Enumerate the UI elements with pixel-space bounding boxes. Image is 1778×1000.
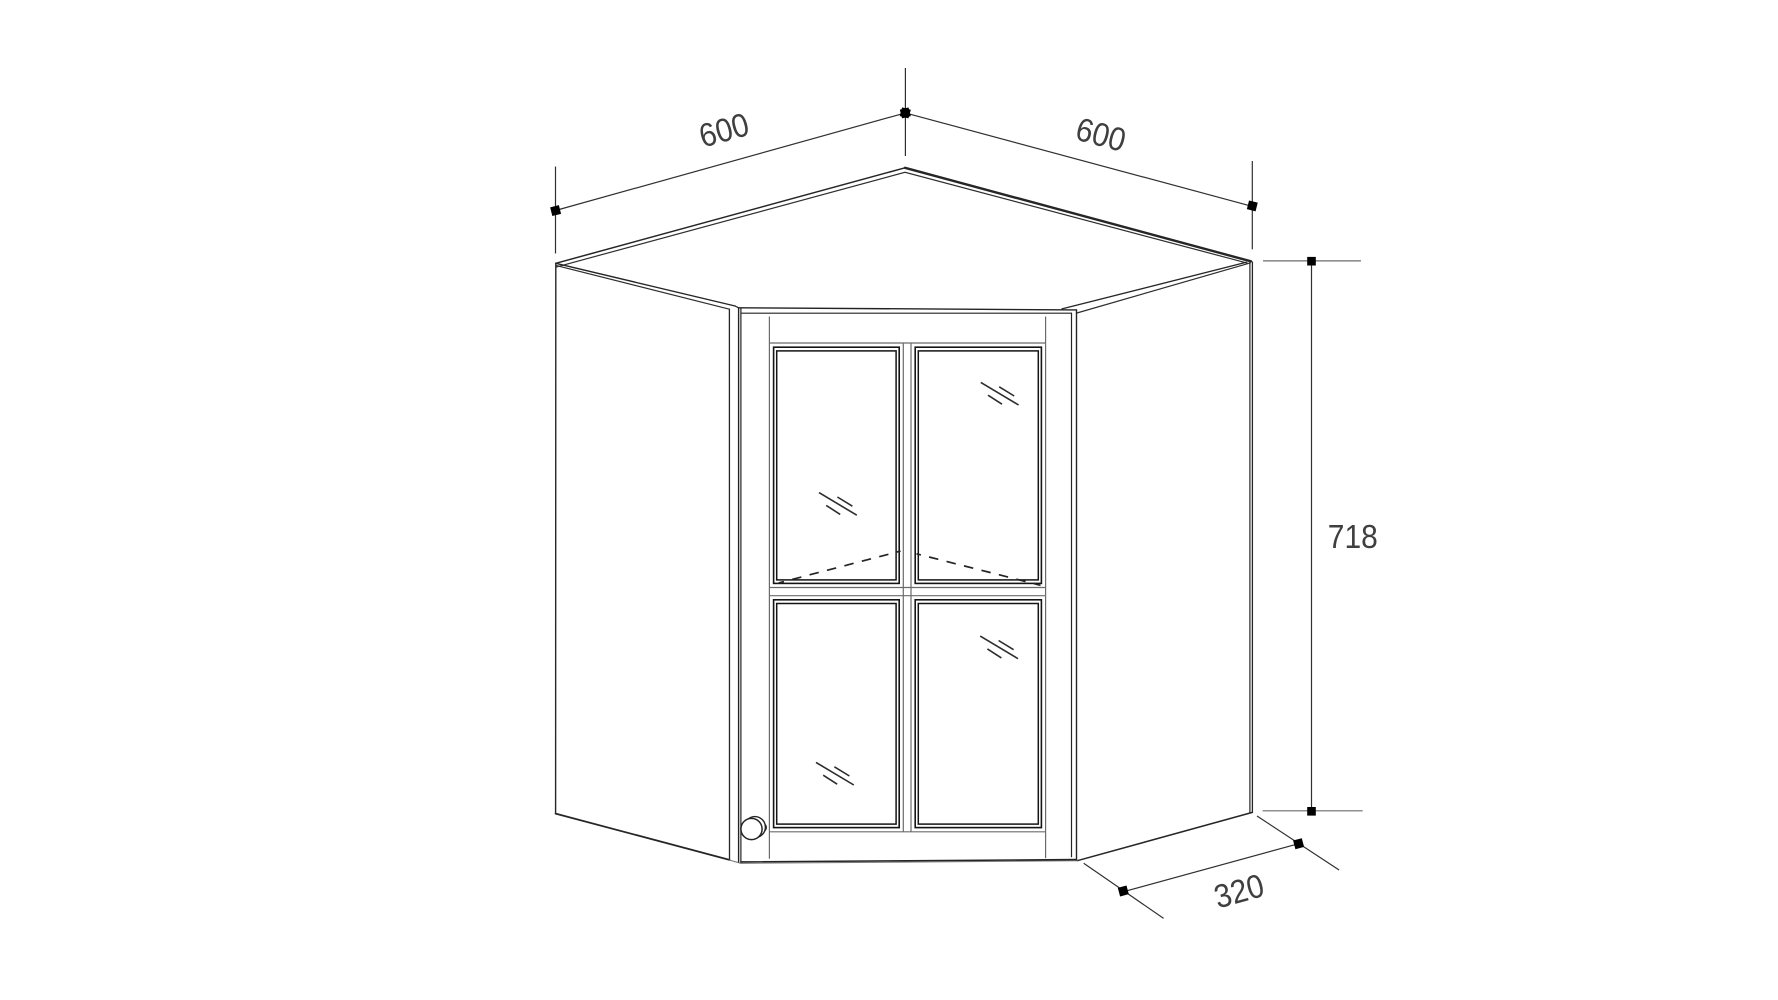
svg-text:718: 718 [1328,518,1378,555]
